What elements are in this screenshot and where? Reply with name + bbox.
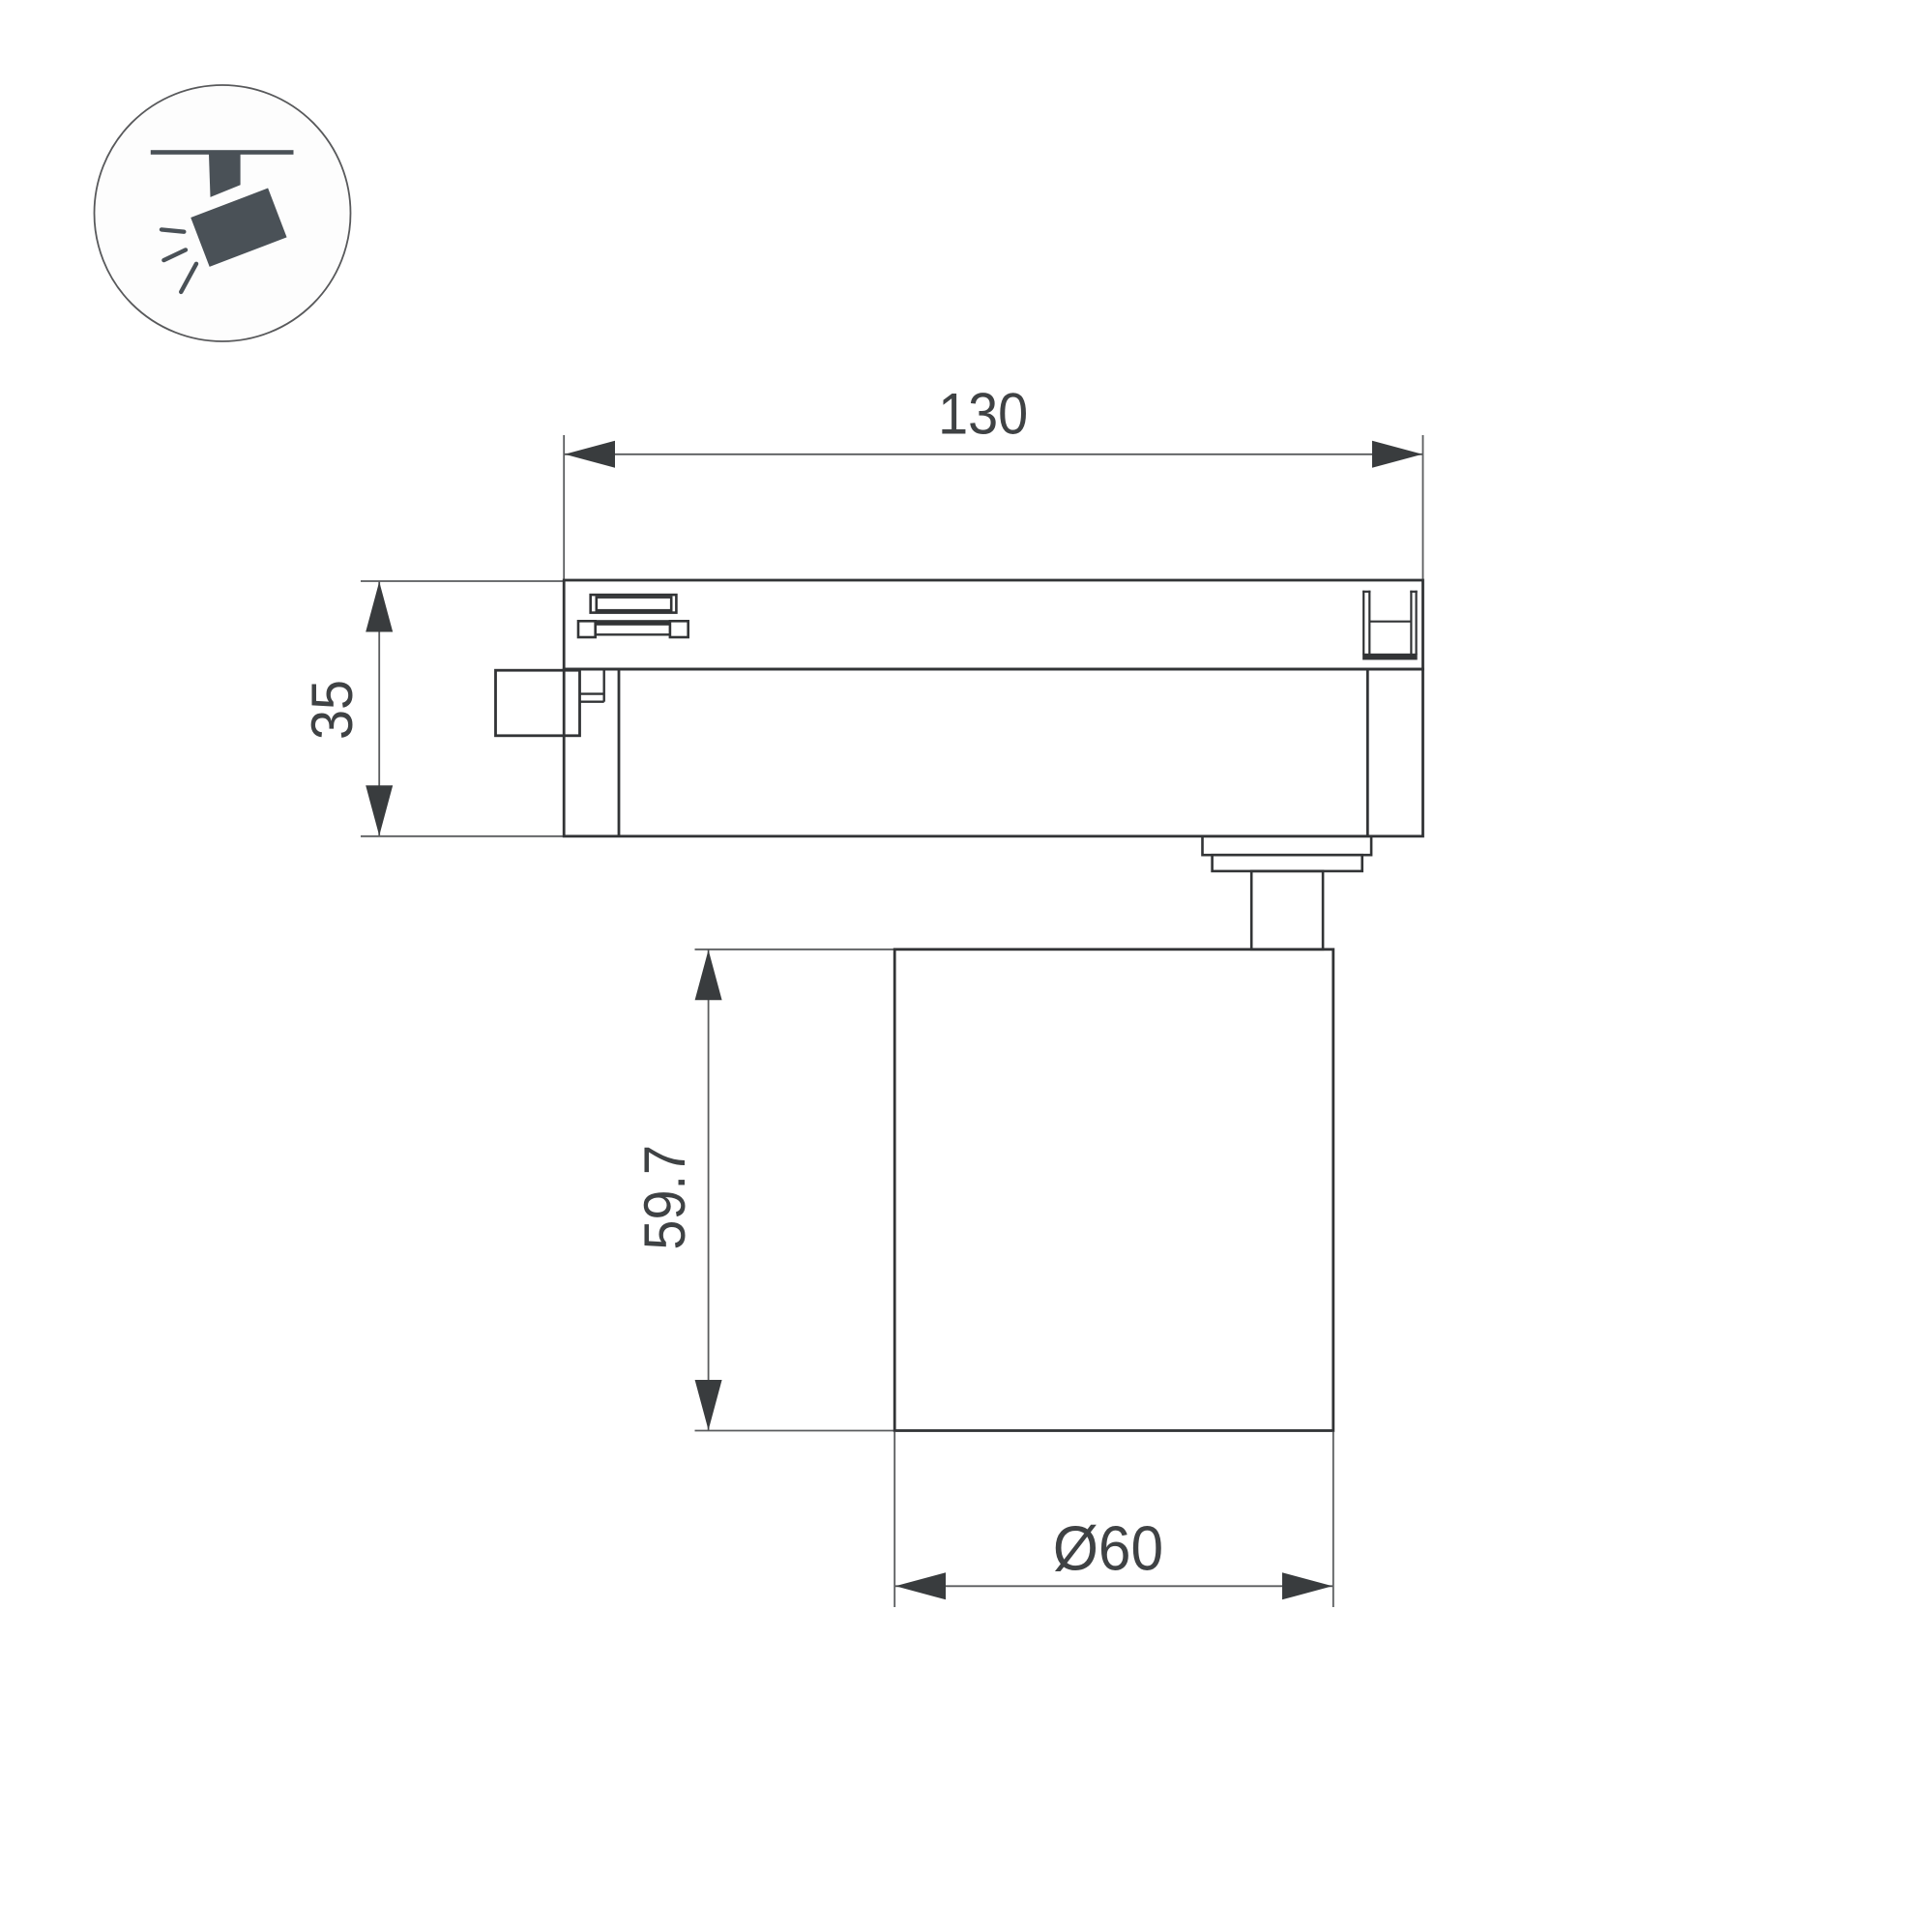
svg-text:35: 35 bbox=[301, 680, 365, 740]
svg-text:59.7: 59.7 bbox=[633, 1145, 697, 1250]
svg-text:Ø60: Ø60 bbox=[1053, 1514, 1163, 1584]
svg-text:130: 130 bbox=[938, 383, 1028, 447]
